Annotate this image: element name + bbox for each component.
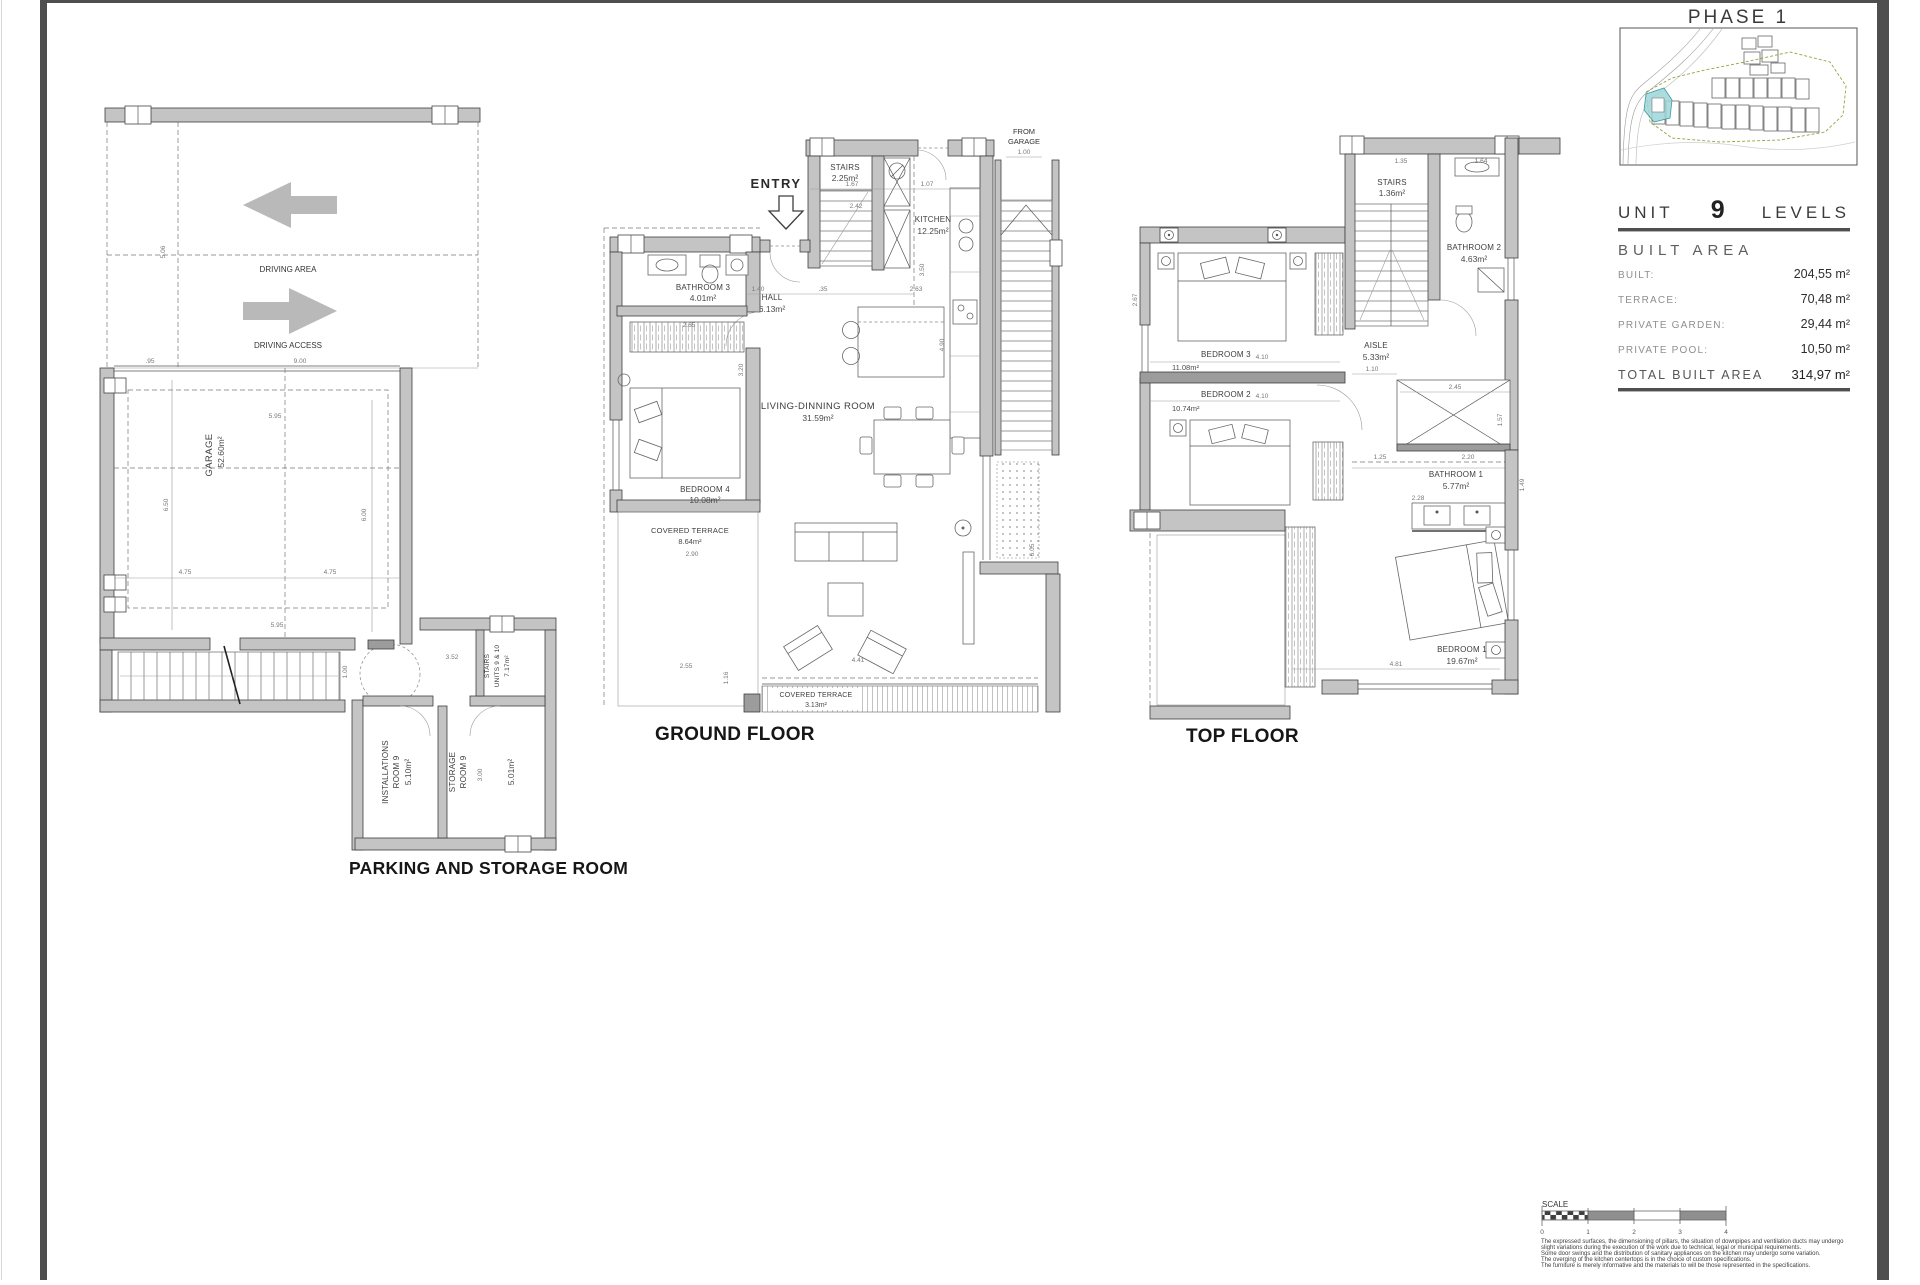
unit-number: 9 (1711, 196, 1725, 225)
scale-tick: 3 (1678, 1229, 1682, 1236)
kitchen-sink (959, 219, 973, 233)
svg-text:4.41: 4.41 (852, 657, 865, 664)
disclaimer: The expressed surfaces, the dimensioning… (1541, 1239, 1881, 1269)
entry-label: ENTRY (750, 176, 801, 191)
area-row-garden: PRIVATE GARDEN: 29,44 m² (1618, 317, 1850, 331)
svg-text:2.28: 2.28 (1412, 495, 1425, 502)
page-left-bar (40, 0, 47, 1280)
top-floor-title: TOP FLOOR (1186, 726, 1299, 748)
storage-room-area: 5.01m² (506, 759, 516, 786)
coffee-table (828, 583, 863, 616)
site-plan (1620, 28, 1857, 165)
page-left-faint-line (1, 0, 2, 1280)
svg-text:2.55: 2.55 (680, 663, 693, 670)
bedroom4-label: BEDROOM 4 (680, 485, 730, 494)
bathroom3-area: 4.01m² (690, 293, 717, 303)
bedroom1-label: BEDROOM 1 (1437, 645, 1487, 654)
svg-text:GARAGE: GARAGE (1008, 137, 1040, 146)
unit-levels-word: LEVELS (1762, 203, 1850, 223)
dim: 3.00 (477, 768, 484, 781)
unit-title: UNIT 9 LEVELS (1618, 196, 1850, 225)
terrace-front-area: 3.13m² (805, 702, 827, 709)
area-row-pool: PRIVATE POOL: 10,50 m² (1618, 342, 1850, 356)
parking-plan: DRIVING AREA DRIVING ACCESS 5.06 .95 9.0… (100, 106, 556, 852)
hall-area: 6.13m² (759, 304, 786, 314)
party-wall (1140, 372, 1345, 383)
kitchen-island (858, 307, 944, 377)
bathroom1-label: BATHROOM 1 (1429, 470, 1484, 479)
scale-tick: 1 (1586, 1229, 1590, 1236)
scale-tick: 0 (1540, 1229, 1544, 1236)
dim: 4.75 (179, 569, 192, 576)
divider (1618, 388, 1850, 392)
parking-top-wall (105, 108, 480, 122)
bedroom3-area: 11.08m² (1172, 363, 1199, 372)
driving-arrow-right-icon (243, 288, 337, 334)
deck-area (997, 462, 1039, 558)
kitchen-label: KITCHEN (915, 215, 952, 224)
dim: 3.52 (446, 654, 459, 661)
kitchen-hob (953, 300, 977, 324)
dim: 5.06 (160, 245, 167, 258)
kitchen-counter (950, 188, 980, 438)
svg-text:1.25: 1.25 (1374, 454, 1387, 461)
dim: .95 (145, 358, 154, 365)
disclaimer-line: The furniture is merely informative and … (1541, 1263, 1881, 1269)
bedroom3-bed (1178, 253, 1286, 341)
dim: 5.95 (269, 413, 282, 420)
svg-text:4.90: 4.90 (939, 338, 946, 351)
phase-title: PHASE 1 (1620, 7, 1857, 29)
stairs-units-area: 7.17m² (504, 655, 511, 677)
svg-text:1.40: 1.40 (752, 286, 765, 293)
garage-ramp (1001, 200, 1052, 450)
area-row-built: BUILT: 204,55 m² (1618, 267, 1850, 281)
top-stairs-treads (1355, 204, 1428, 326)
bedroom2-label: BEDROOM 2 (1201, 390, 1251, 399)
living-label: LIVING-DINNING ROOM (761, 401, 875, 412)
svg-text:1.57: 1.57 (1497, 413, 1504, 426)
svg-text:1.49: 1.49 (1519, 478, 1526, 491)
terrace-side-label: COVERED TERRACE (651, 526, 729, 535)
from-garage-label: FROM (1013, 127, 1035, 136)
bedroom1-wardrobe (1285, 527, 1315, 687)
svg-text:1.07: 1.07 (921, 181, 934, 188)
svg-text:2.63: 2.63 (910, 286, 923, 293)
dim: 1.00 (1018, 149, 1031, 156)
svg-text:.35: .35 (818, 286, 827, 293)
bathroom3-label: BATHROOM 3 (676, 283, 731, 292)
unit-word: UNIT (1618, 203, 1674, 223)
top-floor-plan: BEDROOM 3 11.08m² 4.10 BEDROOM 2 4.10 10… (1130, 136, 1560, 719)
total-built-area-row: TOTAL BUILT AREA 314,97 m² (1618, 367, 1850, 382)
garage-right-wall (400, 368, 412, 644)
area-row-terrace: TERRACE: 70,48 m² (1618, 292, 1850, 306)
terrace-front-label: COVERED TERRACE (780, 692, 853, 699)
bathroom2-area: 4.63m² (1461, 254, 1488, 264)
bedroom1-area: 19.67m² (1446, 656, 1477, 666)
page-top-line (40, 0, 1889, 3)
svg-text:2.42: 2.42 (850, 203, 863, 210)
floorplan-canvas: DRIVING AREA DRIVING ACCESS 5.06 .95 9.0… (0, 0, 1920, 1280)
ground-floor-title: GROUND FLOOR (655, 724, 815, 746)
dim: 1.00 (342, 665, 349, 678)
dim: 4.75 (324, 569, 337, 576)
scale-tick: 2 (1632, 1229, 1636, 1236)
svg-text:4.81: 4.81 (1390, 661, 1403, 668)
garage-label: GARAGE (204, 433, 215, 476)
top-stairs-label: STAIRS (1377, 178, 1407, 187)
top-stairs-area: 1.36m² (1379, 188, 1406, 198)
armchair (784, 626, 833, 671)
scale-label: SCALE (1542, 1200, 1568, 1209)
page-right-bar (1877, 0, 1889, 1280)
svg-text:3.20: 3.20 (738, 363, 745, 376)
driving-area-label: DRIVING AREA (260, 265, 318, 274)
living-area: 31.59m² (802, 413, 833, 423)
installations-room-area: 5.10m² (403, 759, 413, 786)
scale-bar: SCALE 0 1 2 3 4 (1540, 1200, 1728, 1236)
tv-cabinet (963, 552, 974, 644)
svg-text:1.35: 1.35 (1395, 158, 1408, 165)
hall-label: HALL (762, 293, 783, 302)
dining-table (874, 420, 950, 474)
bedroom2-wardrobe (1313, 442, 1343, 500)
aisle-area: 5.33m² (1363, 352, 1390, 362)
bedroom3-wardrobe (1315, 253, 1343, 335)
stairs-units-label: STAIRS (484, 653, 491, 678)
aisle-label: AISLE (1364, 341, 1388, 350)
scale-tick: 4 (1724, 1229, 1728, 1236)
ground-floor-plan: ENTRY STAIRS 2.25m² (604, 127, 1062, 712)
bathroom2-toilet (1456, 212, 1472, 232)
bedroom2-area: 10.74m² (1172, 404, 1200, 413)
svg-text:1.67: 1.67 (846, 181, 859, 188)
svg-text:2.90: 2.90 (686, 551, 699, 558)
svg-text:3.50: 3.50 (919, 263, 926, 276)
unit-info-panel: UNIT 9 LEVELS BUILT AREA BUILT: 204,55 m… (1618, 196, 1850, 392)
driving-arrow-left-icon (243, 182, 337, 228)
svg-text:2.20: 2.20 (1462, 454, 1475, 461)
svg-text:1.16: 1.16 (723, 671, 730, 684)
parking-title: PARKING AND STORAGE ROOM (349, 858, 628, 879)
svg-text:2.65: 2.65 (683, 322, 696, 329)
entry-arrow-icon (769, 196, 803, 229)
kitchen-area: 12.25m² (917, 226, 948, 236)
garage-area: 52.60m² (216, 436, 226, 467)
bedroom3-label: BEDROOM 3 (1201, 350, 1251, 359)
svg-text:ROOM 9: ROOM 9 (459, 755, 468, 788)
door-swing (360, 644, 420, 704)
bedroom1-bed (1395, 540, 1508, 640)
storage-room-label: STORAGE (448, 752, 457, 792)
dim: 9.00 (294, 358, 307, 365)
dim: 6.00 (361, 508, 368, 521)
sofa (795, 523, 897, 561)
bathroom2-label: BATHROOM 2 (1447, 243, 1502, 252)
bedroom2-bed (1190, 420, 1290, 505)
bedroom4-bed (630, 388, 740, 478)
bedroom4-area: 10.08m² (689, 495, 720, 505)
armchair (858, 630, 906, 674)
svg-text:4.10: 4.10 (1256, 393, 1269, 400)
divider (1618, 228, 1850, 232)
svg-text:ROOM 9: ROOM 9 (392, 755, 401, 788)
built-area-heading: BUILT AREA (1618, 242, 1850, 259)
svg-text:1.10: 1.10 (1366, 366, 1379, 373)
svg-text:4.10: 4.10 (1256, 354, 1269, 361)
dim: 6.50 (163, 498, 170, 511)
svg-text:2.67: 2.67 (1132, 293, 1139, 306)
svg-text:UNITS 9 & 10: UNITS 9 & 10 (494, 645, 501, 688)
svg-text:2.45: 2.45 (1449, 384, 1462, 391)
svg-text:6.05: 6.05 (1029, 543, 1036, 556)
bathroom1-area: 5.77m² (1443, 481, 1470, 491)
dim: 5.95 (271, 622, 284, 629)
svg-text:1.64: 1.64 (1475, 158, 1488, 165)
terrace-side-area: 8.64m² (678, 537, 702, 546)
stairs-label: STAIRS (830, 163, 860, 172)
bathroom3-vanity (648, 255, 686, 275)
driving-access-label: DRIVING ACCESS (254, 341, 322, 350)
installations-room-label: INSTALLATIONS (381, 740, 390, 804)
